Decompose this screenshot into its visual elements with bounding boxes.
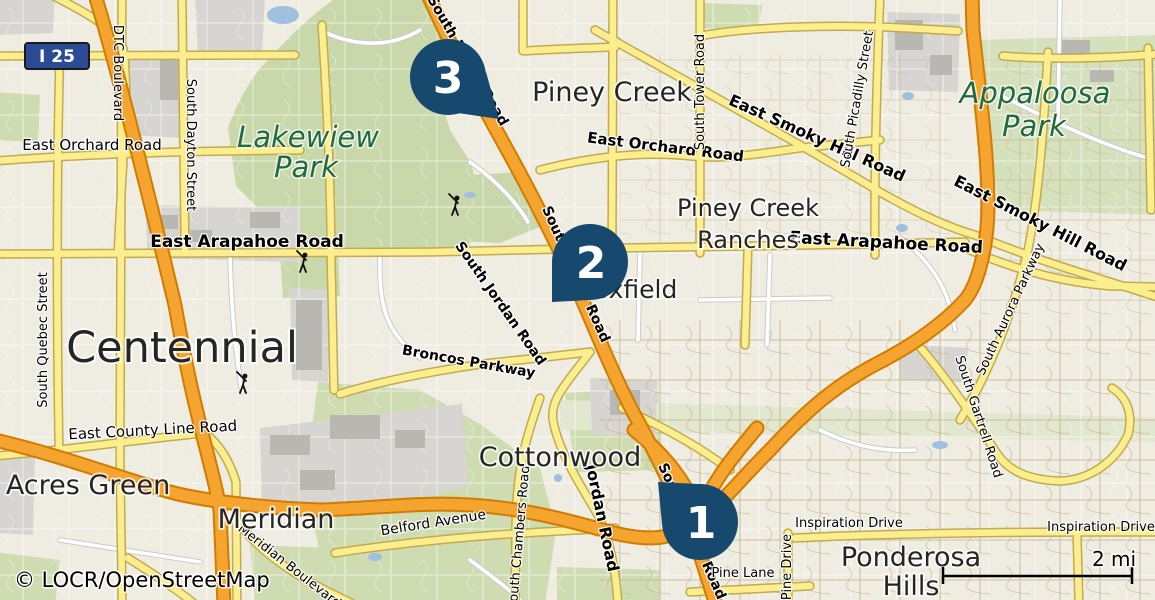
road-label-dtc-boulevard: DTC Boulevard bbox=[110, 25, 125, 121]
road-label-south-quebec-street: South Quebec Street bbox=[36, 272, 51, 407]
place-label-centennial: Centennial bbox=[66, 323, 298, 373]
place-label-ponderosa-hills-1: Ponderosa bbox=[841, 542, 981, 573]
place-label-piney-creek: Piney Creek bbox=[532, 77, 692, 108]
place-label-cottonwood: Cottonwood bbox=[479, 442, 641, 473]
map-canvas[interactable]: East Orchard Road East Orchard Road East… bbox=[0, 0, 1155, 600]
road-label-south-tower-road: South Tower Road bbox=[693, 34, 708, 150]
map-svg: East Orchard Road East Orchard Road East… bbox=[0, 0, 1155, 600]
map-attribution: © LOCR/OpenStreetMap bbox=[14, 568, 270, 592]
highway-shield-i25: I 25 bbox=[25, 43, 89, 69]
marker-number: 3 bbox=[433, 53, 464, 104]
marker-number: 1 bbox=[686, 498, 717, 549]
place-label-ponderosa-hills-2: Hills bbox=[883, 571, 940, 600]
place-label-piney-creek-ranches-2: Ranches bbox=[697, 226, 799, 254]
place-label-meridian: Meridian bbox=[218, 504, 335, 535]
park-label-appaloosa-2: Park bbox=[1002, 109, 1067, 143]
road-label-pine-drive: Pine Drive bbox=[780, 534, 795, 600]
park-label-lakeview-1: Lakewiew bbox=[237, 120, 379, 154]
park-label-appaloosa-1: Appaloosa bbox=[958, 76, 1111, 110]
place-label-acres-green: Acres Green bbox=[6, 470, 170, 501]
marker-number: 2 bbox=[576, 238, 607, 289]
road-label-east-orchard-road-w: East Orchard Road bbox=[22, 136, 162, 154]
highway-shield-label: I 25 bbox=[39, 47, 75, 67]
road-label-south-dayton-street: South Dayton Street bbox=[183, 79, 198, 212]
place-label-piney-creek-ranches-1: Piney Creek bbox=[677, 194, 819, 222]
road-label-east-arapahoe-road-w: East Arapahoe Road bbox=[150, 232, 344, 252]
road-label-inspiration-drive-e: Inspiration Drive bbox=[1047, 520, 1155, 535]
park-label-lakeview-2: Park bbox=[274, 150, 339, 184]
scale-label: 2 mi bbox=[1092, 547, 1136, 571]
road-label-pine-lane: Pine Lane bbox=[712, 566, 775, 581]
road-label-inspiration-drive-w: Inspiration Drive bbox=[795, 516, 903, 531]
